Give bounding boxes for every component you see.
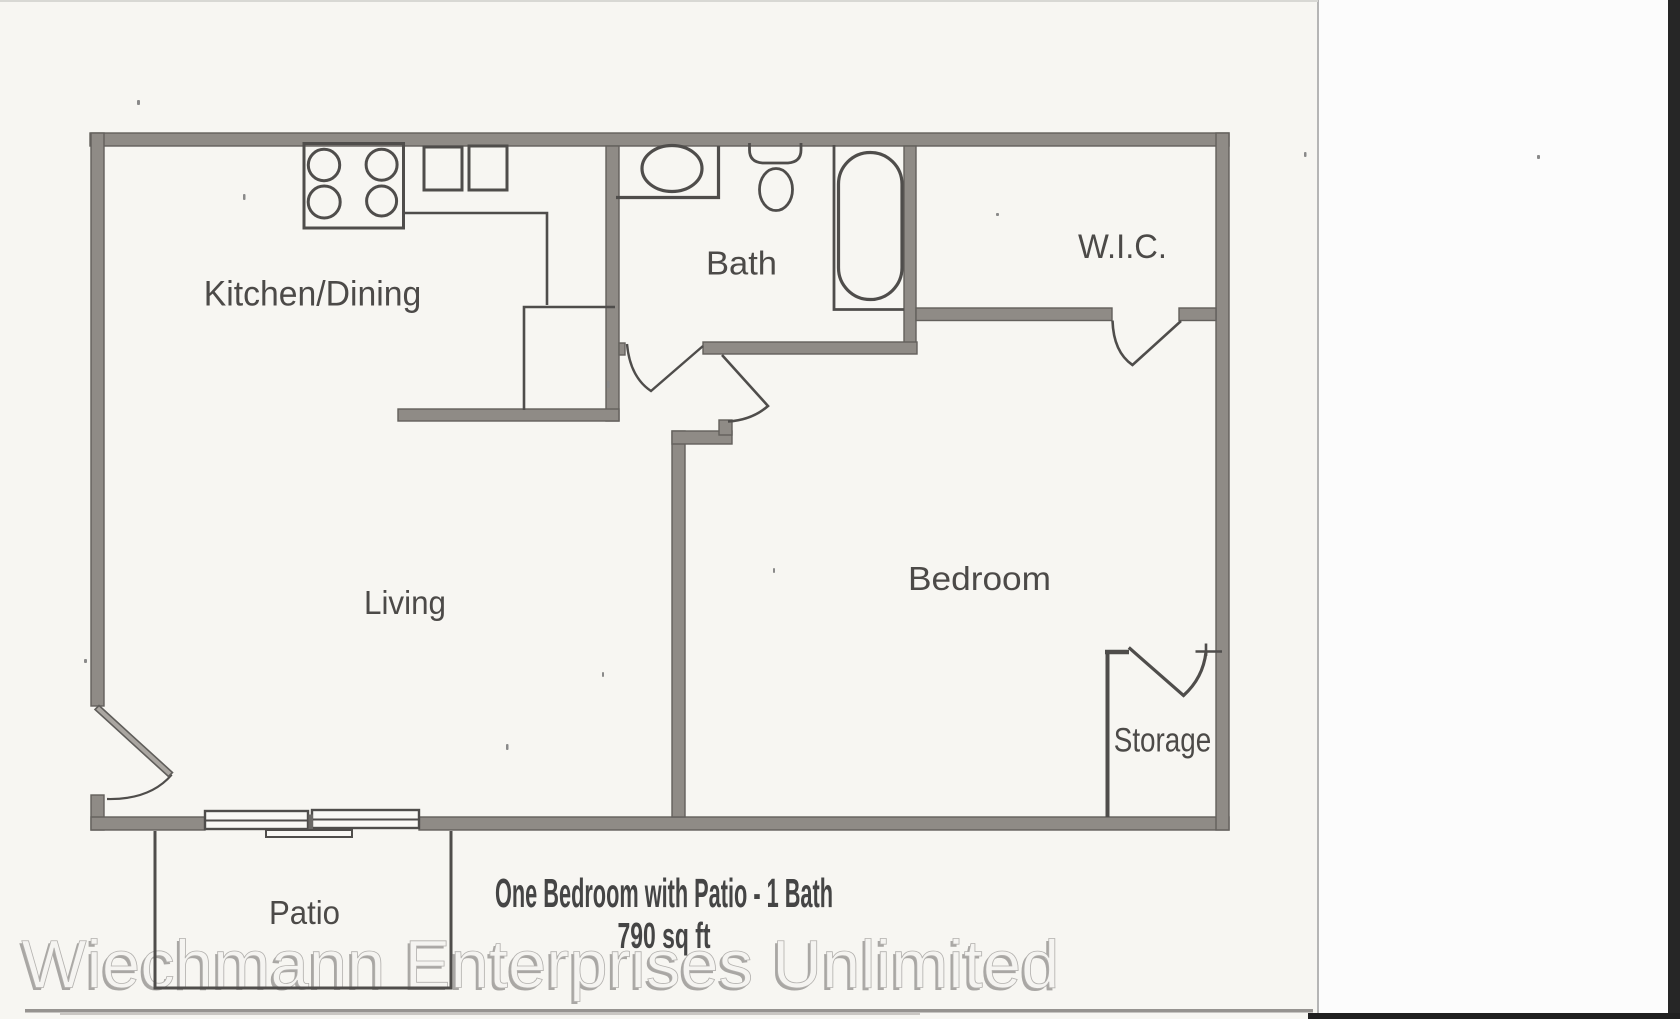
- svg-text:Patio: Patio: [269, 894, 340, 931]
- svg-text:Bedroom: Bedroom: [908, 560, 1051, 597]
- svg-text:One Bedroom with Patio - 1 Bat: One Bedroom with Patio - 1 Bath: [495, 870, 833, 916]
- svg-text:W.I.C.: W.I.C.: [1078, 228, 1167, 266]
- svg-text:Living: Living: [364, 585, 446, 622]
- svg-text:Bath: Bath: [706, 245, 777, 282]
- svg-text:Kitchen/Dining: Kitchen/Dining: [204, 275, 422, 314]
- svg-text:790 sq ft: 790 sq ft: [618, 915, 711, 956]
- svg-text:Storage: Storage: [1114, 722, 1212, 760]
- svg-text:Wiechmann Enterprises Unlimite: Wiechmann Enterprises Unlimited: [22, 927, 1060, 1003]
